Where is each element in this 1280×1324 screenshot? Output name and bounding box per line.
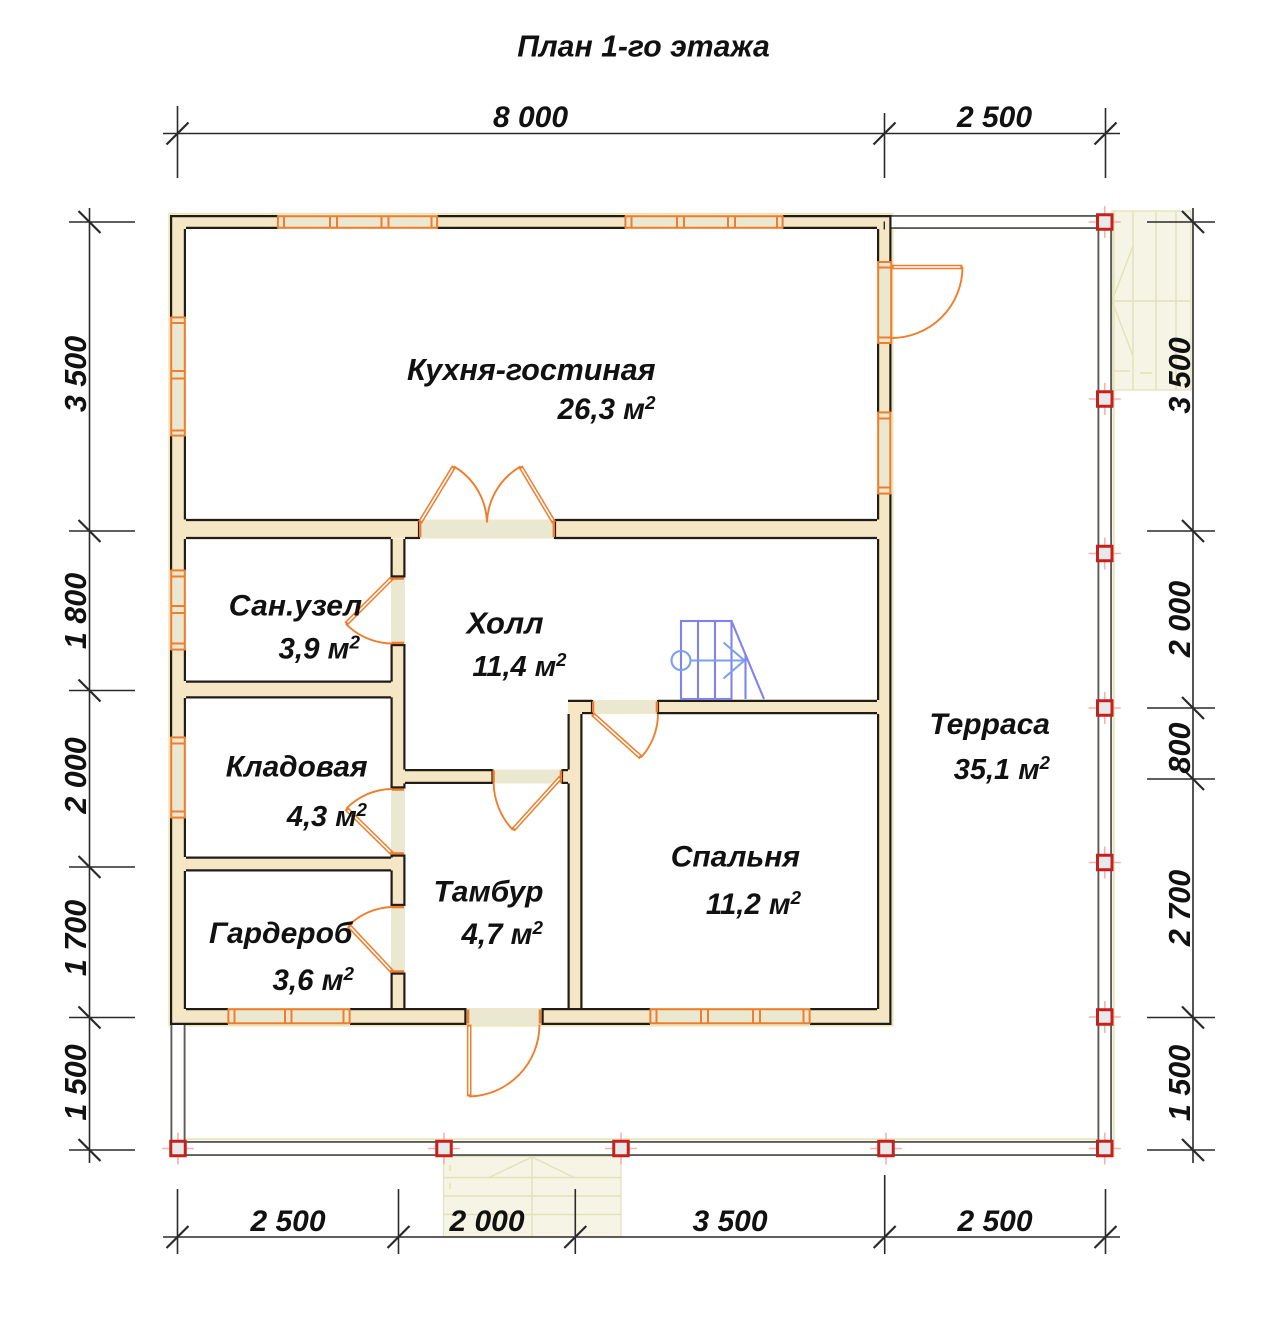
svg-text:26,3 м2: 26,3 м2 xyxy=(557,392,656,426)
svg-text:Тамбур: Тамбур xyxy=(433,876,543,909)
svg-text:2 000: 2 000 xyxy=(448,1205,524,1238)
svg-text:Кухня-гостиная: Кухня-гостиная xyxy=(407,353,656,387)
svg-text:Сан.узел: Сан.узел xyxy=(229,590,363,623)
svg-text:3,9 м2: 3,9 м2 xyxy=(278,631,360,665)
svg-text:3 500: 3 500 xyxy=(1163,337,1197,413)
svg-text:2 700: 2 700 xyxy=(1163,870,1197,947)
svg-text:35,1 м2: 35,1 м2 xyxy=(954,752,1051,786)
svg-text:Гардероб: Гардероб xyxy=(209,917,354,950)
svg-text:2 000: 2 000 xyxy=(1163,581,1197,658)
svg-text:4,3 м2: 4,3 м2 xyxy=(286,799,368,833)
svg-text:Терраса: Терраса xyxy=(929,708,1050,741)
svg-text:2 500: 2 500 xyxy=(956,101,1032,134)
svg-text:План 1-го этажа: План 1-го этажа xyxy=(517,31,770,64)
svg-text:8 000: 8 000 xyxy=(493,101,568,134)
svg-text:2 000: 2 000 xyxy=(59,737,93,814)
svg-text:3 500: 3 500 xyxy=(59,336,93,412)
svg-text:1 500: 1 500 xyxy=(59,1044,93,1120)
svg-text:11,2 м2: 11,2 м2 xyxy=(706,887,802,921)
svg-text:800: 800 xyxy=(1163,723,1197,774)
svg-text:3,6 м2: 3,6 м2 xyxy=(272,963,354,997)
svg-text:Спальня: Спальня xyxy=(671,841,801,874)
svg-text:Холл: Холл xyxy=(465,606,544,641)
svg-text:1 500: 1 500 xyxy=(1163,1045,1197,1121)
svg-text:3 500: 3 500 xyxy=(692,1205,767,1238)
svg-text:1 700: 1 700 xyxy=(59,900,93,976)
svg-text:2 500: 2 500 xyxy=(249,1205,325,1238)
svg-text:Кладовая: Кладовая xyxy=(226,751,368,784)
svg-text:1 800: 1 800 xyxy=(59,573,93,649)
svg-text:2 500: 2 500 xyxy=(956,1205,1032,1238)
svg-text:4,7 м2: 4,7 м2 xyxy=(460,917,543,951)
svg-text:11,4 м2: 11,4 м2 xyxy=(472,649,567,683)
